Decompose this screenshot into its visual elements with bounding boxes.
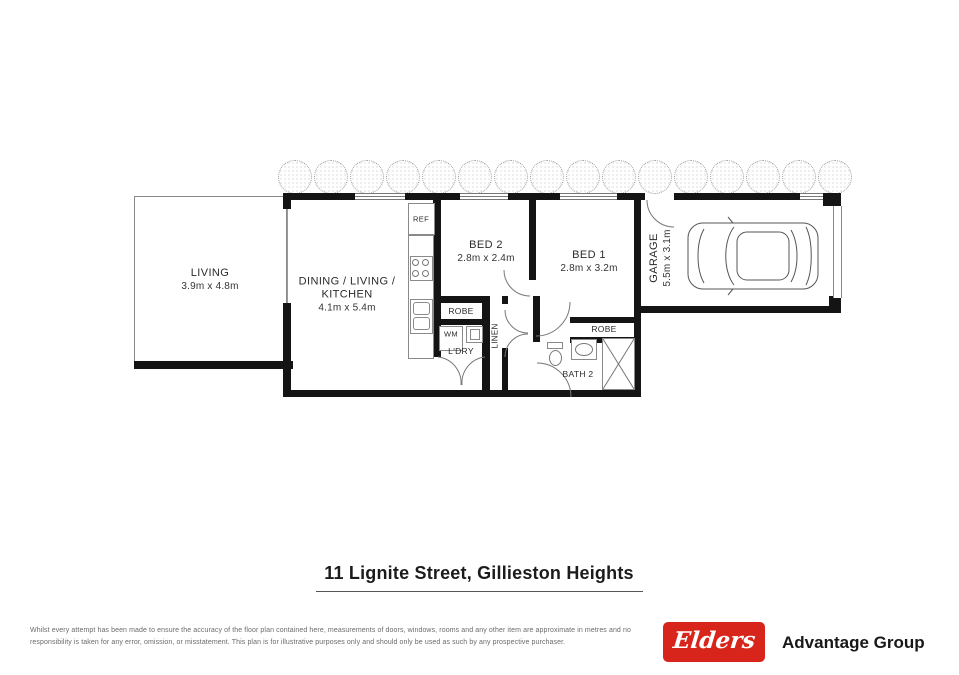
window	[355, 193, 405, 200]
label-ref: REF	[413, 215, 429, 224]
sink-bowl	[413, 317, 430, 330]
wall	[508, 193, 560, 200]
room-label-dining: DINING / LIVING / KITCHEN 4.1m x 5.4m	[286, 276, 408, 315]
tree-icon	[782, 160, 816, 194]
tree-icon	[314, 160, 348, 194]
wall	[283, 303, 291, 397]
tree-icon	[458, 160, 492, 194]
page-title: 11 Lignite Street, Gillieston Heights	[324, 563, 633, 584]
laundry-door-arc	[438, 357, 461, 385]
tree-icon	[566, 160, 600, 194]
car-icon	[688, 217, 818, 295]
wall	[529, 200, 536, 280]
bed1-door-arc	[536, 302, 570, 336]
wall	[283, 390, 641, 397]
toilet-icon	[549, 350, 562, 366]
room-label-bed2: BED 2 2.8m x 2.4m	[457, 239, 514, 265]
burner-icon	[412, 270, 419, 277]
wall	[829, 296, 841, 313]
window	[800, 193, 823, 200]
label-robe-laundry: ROBE	[448, 306, 473, 316]
tree-icon	[350, 160, 384, 194]
tree-icon	[746, 160, 780, 194]
wall	[482, 296, 490, 390]
sink-bowl	[413, 302, 430, 315]
tree-icon	[278, 160, 312, 194]
room-label-bed1: BED 1 2.8m x 3.2m	[560, 249, 617, 275]
label-robe-bed1: ROBE	[591, 324, 616, 334]
burner-icon	[422, 270, 429, 277]
elders-logo: Elders	[663, 622, 765, 662]
tree-icon	[386, 160, 420, 194]
wall	[502, 348, 508, 390]
tree-row	[278, 160, 852, 194]
wall	[533, 296, 540, 342]
disclaimer-line2: responsibility is taken for any error, o…	[30, 639, 565, 646]
title-underline	[316, 591, 643, 592]
garage-door	[833, 206, 842, 298]
linen-door-arc	[505, 310, 528, 333]
wall	[405, 193, 460, 200]
wall	[634, 193, 641, 397]
basin-icon	[575, 343, 593, 356]
laundry-tub-bowl	[470, 329, 480, 340]
label-ldry: L'DRY	[448, 346, 474, 356]
wall	[570, 317, 640, 323]
tree-icon	[710, 160, 744, 194]
burner-icon	[422, 259, 429, 266]
wall	[134, 361, 293, 369]
tree-icon	[530, 160, 564, 194]
label-wm: WM	[444, 330, 458, 339]
group-name-text: Advantage Group	[782, 633, 925, 653]
wall	[502, 296, 508, 304]
wall	[823, 193, 841, 206]
label-linen: LINEN	[491, 323, 500, 348]
shower	[602, 338, 635, 390]
tree-icon	[638, 160, 672, 194]
kitchen-bench	[408, 235, 434, 359]
disclaimer-line1: Whilst every attempt has been made to en…	[30, 627, 631, 634]
window	[460, 193, 508, 200]
window	[560, 193, 617, 200]
linen-door-arc	[505, 334, 528, 357]
entry-door-arc	[647, 200, 674, 227]
tree-icon	[422, 160, 456, 194]
room-label-living: LIVING 3.9m x 4.8m	[181, 267, 238, 293]
tree-icon	[602, 160, 636, 194]
wall	[641, 306, 841, 313]
tree-icon	[818, 160, 852, 194]
wall	[283, 193, 355, 200]
elders-logo-text: Elders	[671, 627, 756, 657]
wall	[283, 193, 291, 209]
tree-icon	[494, 160, 528, 194]
bed2-door-arc	[504, 270, 530, 296]
toilet-cistern	[547, 342, 563, 349]
label-bath2: BATH 2	[563, 369, 594, 379]
burner-icon	[412, 259, 419, 266]
tree-icon	[674, 160, 708, 194]
floorplan-page: LIVING 3.9m x 4.8m DINING / LIVING / KIT…	[0, 0, 959, 675]
room-label-garage: GARAGE 5.5m x 3.1m	[648, 229, 674, 286]
wall	[674, 193, 800, 200]
